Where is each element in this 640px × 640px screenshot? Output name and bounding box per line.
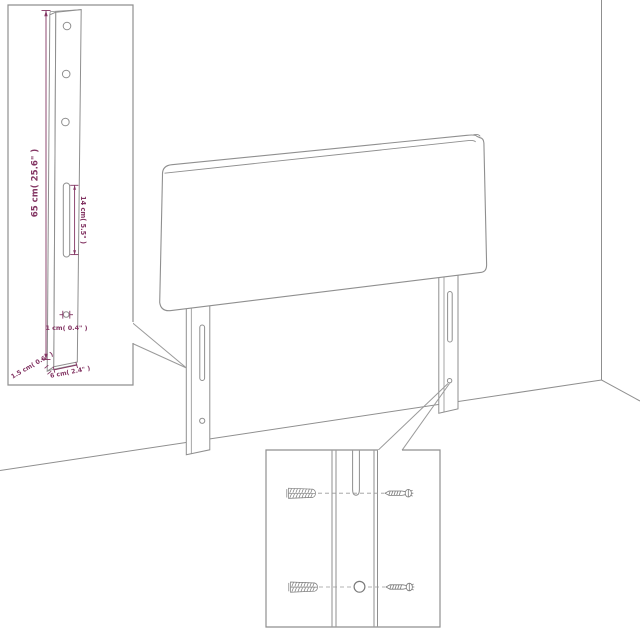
leg-callout-line-bottom [132,343,187,368]
right-leg-slot [448,292,453,343]
hardware-callout-line-right [402,384,450,451]
diagram-canvas: 65 cm( 25.6" ) 14 cm( 5.5" ) 1 cm( 0.4" … [0,0,640,640]
post-hole-1 [63,22,71,30]
right-leg-hole [447,379,451,383]
post-slot [63,183,69,257]
headboard-diagram: 65 cm( 25.6" ) 14 cm( 5.5" ) 1 cm( 0.4" … [0,0,640,640]
floor-line-right [602,380,640,401]
wall-plug-icon-upper [287,488,316,498]
leg-detail-inset: 65 cm( 25.6" ) 14 cm( 5.5" ) 1 cm( 0.4" … [8,5,133,385]
callout-lines [132,322,450,450]
left-leg-slot [200,325,205,381]
left-leg-hole [200,418,205,423]
hardware-detail-inset [266,450,440,627]
dimension-label-slot-length: 14 cm( 5.5" ) [79,196,87,244]
headboard-face [160,135,487,311]
leg-callout-line-top [132,322,187,368]
post-bottom-hole [63,312,69,318]
left-leg [186,302,210,455]
right-leg [439,267,458,413]
hardware-callout-line-left [378,384,448,451]
post-hole-3 [62,118,70,126]
post-hole-2 [62,70,70,78]
dimension-label-post-height: 65 cm( 25.6" ) [31,149,41,218]
magnified-round-hole [354,581,365,592]
headboard-panel [160,134,487,310]
dimension-label-hole-diameter: 1 cm( 0.4" ) [45,324,87,332]
wall-plug-icon-lower [289,582,318,592]
